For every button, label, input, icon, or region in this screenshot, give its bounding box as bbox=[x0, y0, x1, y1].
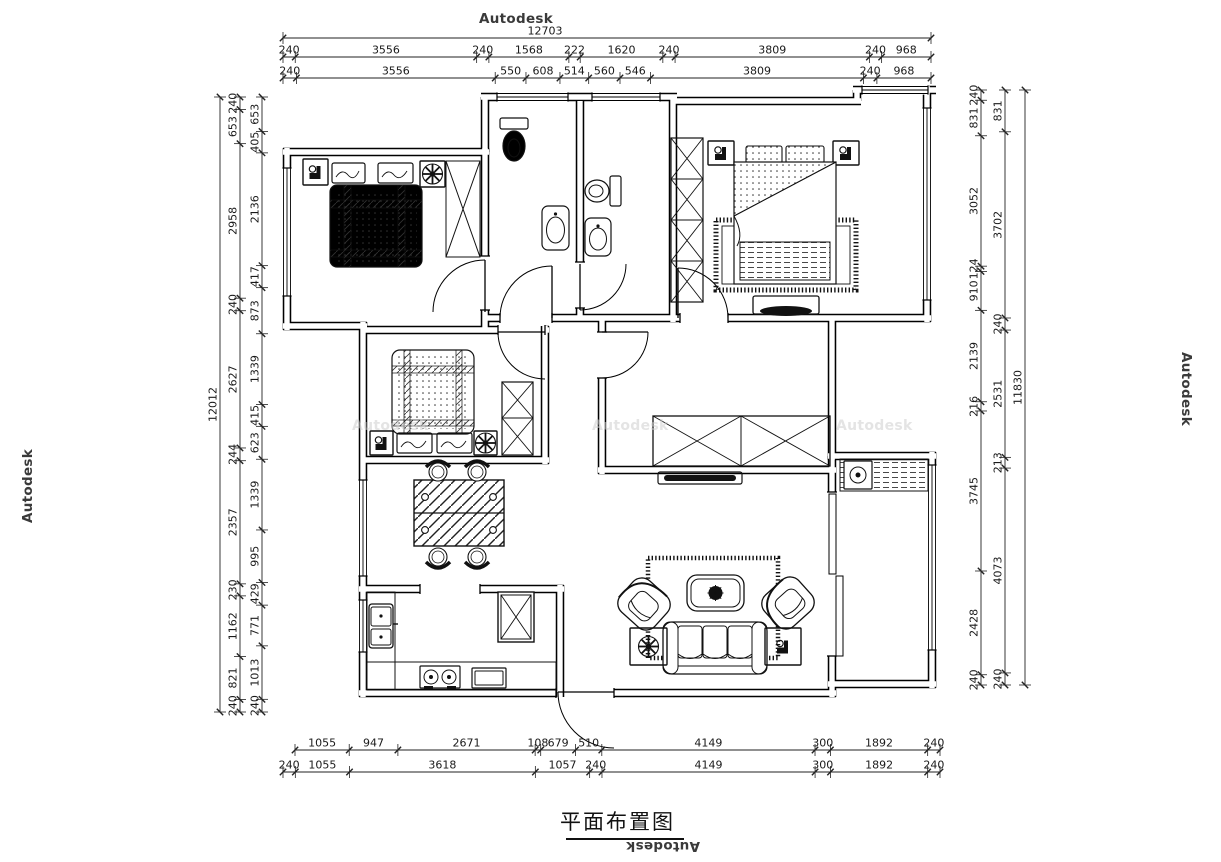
dim-label: 1013 bbox=[249, 659, 262, 687]
nightstand-lamp-icon bbox=[303, 159, 328, 185]
dim-label: 3702 bbox=[992, 211, 1005, 239]
dim-label: 240 bbox=[249, 695, 262, 716]
autodesk-watermark-top: Autodesk bbox=[479, 11, 553, 27]
dim-label: 405 bbox=[249, 132, 262, 153]
dim-label: 244 bbox=[227, 444, 240, 465]
title-underline bbox=[566, 838, 684, 840]
dim-label: 968 bbox=[893, 65, 914, 78]
dim-chain: 12012 bbox=[207, 94, 227, 715]
sink bbox=[542, 206, 569, 250]
dim-label: 213 bbox=[992, 452, 1005, 473]
counter-board bbox=[472, 668, 506, 688]
autodesk-watermark-right: Autodesk bbox=[1178, 352, 1194, 426]
balcony bbox=[840, 459, 928, 491]
dim-label: 1568 bbox=[515, 44, 543, 57]
master-bedroom bbox=[671, 138, 859, 316]
dim-label: 240 bbox=[279, 65, 300, 78]
dim-chain: 24010553618105724041493001892240 bbox=[279, 759, 945, 779]
dim-label: 3618 bbox=[428, 759, 456, 772]
dim-label: 2139 bbox=[968, 342, 981, 370]
dim-label: 240 bbox=[279, 44, 300, 57]
balcony-sliding-door bbox=[829, 494, 843, 656]
dim-chain: 2403556240156822216202403809240968 bbox=[279, 44, 935, 64]
kitchen-sink bbox=[369, 604, 398, 648]
closet bbox=[653, 416, 830, 466]
dim-label: 240 bbox=[923, 737, 944, 750]
dim-label: 831 bbox=[968, 108, 981, 129]
dim-label: 546 bbox=[625, 65, 646, 78]
coffee-table bbox=[687, 575, 744, 611]
dim-label: 1162 bbox=[227, 612, 240, 640]
dim-label: 108 bbox=[527, 737, 548, 750]
dim-label: 3809 bbox=[758, 44, 786, 57]
dim-label: 1620 bbox=[608, 44, 636, 57]
dim-label: 910 bbox=[968, 280, 981, 301]
dim-label: 4073 bbox=[992, 557, 1005, 585]
dim-label: 2357 bbox=[227, 508, 240, 536]
ceiling-fan-icon bbox=[474, 431, 497, 455]
dim-label: 608 bbox=[532, 65, 553, 78]
dim-label: 12012 bbox=[207, 387, 220, 422]
sink bbox=[585, 218, 611, 256]
dim-chain: 6534052136417873133941562313399954297711… bbox=[249, 94, 269, 716]
dim-label: 995 bbox=[249, 546, 262, 567]
dim-label: 947 bbox=[363, 737, 384, 750]
dining-chair bbox=[426, 461, 450, 481]
dim-label: 4149 bbox=[694, 737, 722, 750]
ceiling-fan-icon bbox=[420, 161, 445, 187]
dim-label: 240 bbox=[227, 695, 240, 716]
dim-label: 300 bbox=[812, 737, 833, 750]
toilet bbox=[500, 118, 528, 161]
windows bbox=[282, 85, 936, 652]
dim-label: 831 bbox=[992, 100, 1005, 121]
dim-label: 240 bbox=[992, 668, 1005, 689]
dim-label: 510 bbox=[578, 737, 599, 750]
dim-label: 240 bbox=[860, 65, 881, 78]
dim-label: 222 bbox=[564, 44, 585, 57]
master-bed bbox=[734, 162, 836, 284]
dim-label: 300 bbox=[812, 759, 833, 772]
dim-label: 429 bbox=[249, 583, 262, 604]
dim-label: 1057 bbox=[548, 759, 576, 772]
dim-label: 653 bbox=[249, 104, 262, 125]
dim-label: 417 bbox=[249, 266, 262, 287]
dim-label: 3556 bbox=[372, 44, 400, 57]
kitchen bbox=[367, 592, 556, 690]
dining-chair bbox=[465, 461, 489, 481]
dim-label: 240 bbox=[992, 314, 1005, 335]
nightstand-lamp-icon bbox=[708, 141, 734, 165]
tv-bench bbox=[753, 296, 819, 316]
page: { "title": "平面布置图", "watermark": "Autode… bbox=[0, 0, 1221, 862]
dim-label: 240 bbox=[968, 85, 981, 106]
sofa bbox=[663, 622, 767, 674]
dim-label: 240 bbox=[227, 93, 240, 114]
dim-label: 415 bbox=[249, 405, 262, 426]
dining-chair bbox=[465, 548, 489, 568]
dim-label: 550 bbox=[500, 65, 521, 78]
bathroom2 bbox=[585, 176, 621, 256]
stove bbox=[420, 666, 460, 689]
dim-label: 2136 bbox=[249, 195, 262, 223]
dim-label: 560 bbox=[594, 65, 615, 78]
dim-label: 821 bbox=[227, 668, 240, 689]
dim-label: 679 bbox=[548, 737, 569, 750]
dim-label: 1339 bbox=[249, 481, 262, 509]
dim-label: 3809 bbox=[743, 65, 771, 78]
dim-chain: 12703 bbox=[280, 25, 934, 45]
dim-label: 2428 bbox=[968, 609, 981, 637]
dining-area bbox=[414, 461, 504, 568]
dim-chain: 11830 bbox=[1012, 87, 1032, 688]
dining-table bbox=[414, 480, 504, 546]
toilet bbox=[585, 176, 621, 206]
dim-label: 2531 bbox=[992, 380, 1005, 408]
bath1-door bbox=[500, 266, 552, 318]
dim-chain: 2408313052124910213921637452428240 bbox=[968, 85, 988, 691]
dim-label: 1892 bbox=[865, 759, 893, 772]
autodesk-watermark-faint-1: Autodesk bbox=[352, 418, 429, 434]
dim-label: 1055 bbox=[308, 759, 336, 772]
bedroom2-door bbox=[498, 332, 545, 379]
bedroom1 bbox=[303, 159, 480, 267]
bathroom1 bbox=[500, 118, 569, 250]
dim-label: 653 bbox=[227, 116, 240, 137]
dim-label: 240 bbox=[472, 44, 493, 57]
wardrobe bbox=[502, 382, 533, 455]
dim-label: 240 bbox=[279, 759, 300, 772]
autodesk-watermark-faint-2: Autodesk bbox=[592, 418, 669, 434]
dim-label: 240 bbox=[923, 759, 944, 772]
dim-label: 240 bbox=[227, 294, 240, 315]
washing-machine bbox=[840, 459, 928, 491]
dim-label: 1055 bbox=[308, 737, 336, 750]
dim-label: 3745 bbox=[968, 477, 981, 505]
nightstand-lamp-icon bbox=[370, 431, 393, 455]
drawing-title: 平面布置图 bbox=[560, 806, 675, 836]
dim-label: 230 bbox=[227, 579, 240, 600]
dim-label: 3556 bbox=[382, 65, 410, 78]
fridge bbox=[498, 592, 534, 642]
bedroom2 bbox=[370, 350, 533, 455]
double-bed bbox=[330, 185, 422, 267]
dim-label: 2958 bbox=[227, 207, 240, 235]
dim-chain: 24035565506085145605463809240968 bbox=[279, 65, 934, 85]
dim-label: 216 bbox=[968, 396, 981, 417]
dim-label: 1892 bbox=[865, 737, 893, 750]
dim-chain: 831370224025312134073240 bbox=[992, 87, 1012, 690]
dim-label: 873 bbox=[249, 300, 262, 321]
nightstand-lamp-icon bbox=[833, 141, 859, 165]
dim-label: 124 bbox=[968, 258, 981, 279]
dim-label: 2671 bbox=[453, 737, 481, 750]
dim-label: 11830 bbox=[1012, 370, 1025, 405]
bath2-door bbox=[580, 264, 626, 310]
dim-label: 1339 bbox=[249, 355, 262, 383]
dim-label: 968 bbox=[896, 44, 917, 57]
dim-chain: 2406532958240262724423572301162821240 bbox=[227, 93, 247, 716]
dim-label: 240 bbox=[658, 44, 679, 57]
living-room bbox=[613, 558, 819, 674]
dim-label: 514 bbox=[564, 65, 585, 78]
dim-label: 771 bbox=[249, 615, 262, 636]
dim-chain: 1055947267110867951041493001892240 bbox=[292, 737, 945, 757]
room3-door bbox=[602, 332, 648, 378]
wardrobe bbox=[446, 161, 480, 257]
dining-chair bbox=[426, 548, 450, 568]
dim-label: 3052 bbox=[968, 187, 981, 215]
bedroom1-door bbox=[433, 260, 485, 312]
autodesk-watermark-bottom: Autodesk bbox=[626, 838, 700, 854]
dim-label: 240 bbox=[585, 759, 606, 772]
dim-label: 4149 bbox=[695, 759, 723, 772]
dim-label: 240 bbox=[865, 44, 886, 57]
autodesk-watermark-left: Autodesk bbox=[20, 449, 36, 523]
dim-label: 2627 bbox=[227, 365, 240, 393]
dim-label: 240 bbox=[968, 669, 981, 690]
autodesk-watermark-faint-3: Autodesk bbox=[836, 418, 913, 434]
dim-label: 623 bbox=[249, 432, 262, 453]
dimension-chains: 1270324035562401568222162024038092409682… bbox=[207, 25, 1032, 779]
